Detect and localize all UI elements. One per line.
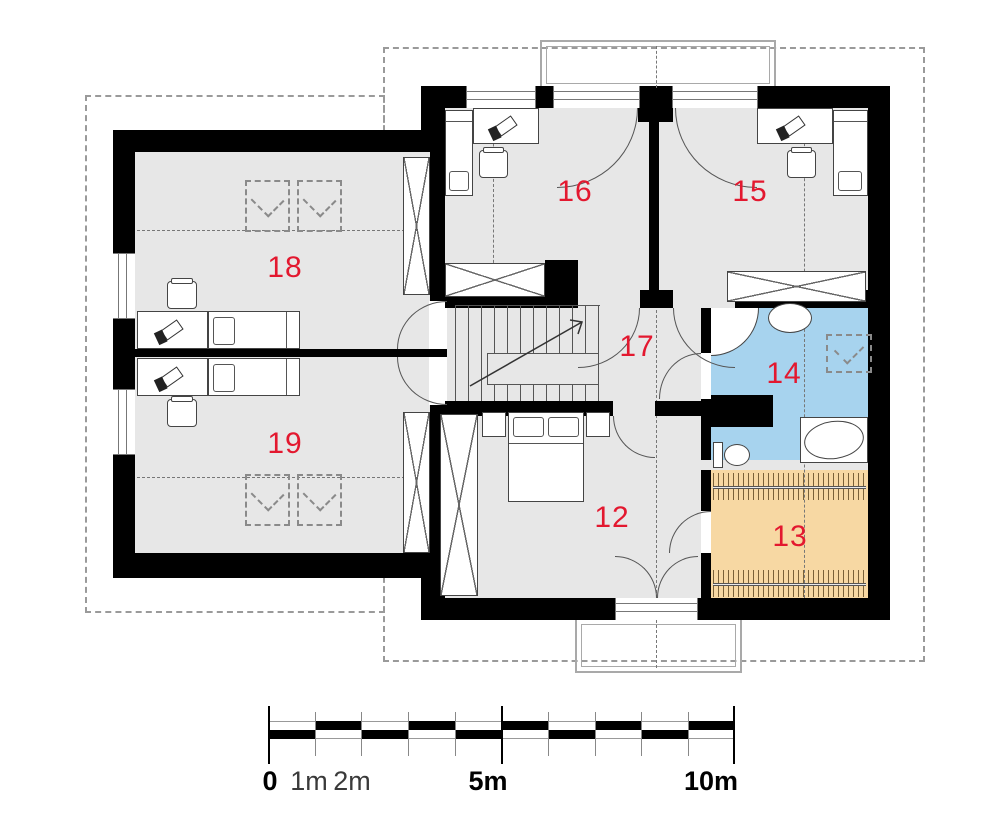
scale-segment <box>688 721 735 730</box>
scale-label-2m: 2m <box>333 766 371 797</box>
scale-segment <box>268 730 315 739</box>
scale-segment <box>548 730 595 739</box>
balcony-bottom-inner <box>581 624 736 667</box>
wardrobe-room19 <box>403 412 430 553</box>
room-label-17: 17 <box>619 330 654 364</box>
scale-label-0: 0 <box>262 766 277 797</box>
pillow <box>838 171 862 191</box>
skylight-room19-b <box>297 474 342 526</box>
scale-tick <box>548 712 549 756</box>
computer-icon <box>160 366 183 387</box>
skylight-bathroom <box>826 334 872 373</box>
wall-pier-between-top-doors <box>638 108 673 122</box>
desk-room18 <box>137 311 208 349</box>
scale-segment <box>408 721 455 730</box>
balcony-top <box>540 40 776 90</box>
hanging-rail-bottom <box>713 570 866 597</box>
wardrobe-room12 <box>440 414 478 596</box>
scale-segment <box>595 721 641 730</box>
chair-room19 <box>167 399 197 427</box>
scale-bar: 0 1m 2m 5m 10m <box>268 704 735 814</box>
scale-tick <box>688 712 689 756</box>
scale-tick <box>641 712 642 756</box>
bed-room12 <box>508 412 584 502</box>
mattress-line <box>834 121 867 122</box>
balcony-door-room15 <box>672 86 758 108</box>
wardrobe-room18 <box>403 157 430 295</box>
scale-label-5m: 5m <box>468 766 507 797</box>
balcony-door-room16 <box>553 86 640 108</box>
window-room18-west <box>113 253 135 319</box>
mattress-line <box>286 359 287 395</box>
scale-tick <box>595 712 596 756</box>
wall-divider-16-15 <box>649 108 659 308</box>
wardrobe-room16 <box>445 263 545 297</box>
room-label-18: 18 <box>267 251 302 285</box>
room-label-13: 13 <box>772 520 807 554</box>
skylight-room18-a <box>245 180 290 232</box>
bed-room16 <box>445 110 473 196</box>
nightstand-room12-right <box>586 412 610 437</box>
scale-segment <box>315 721 361 730</box>
chair-room16 <box>479 150 508 178</box>
balcony-bottom <box>575 618 742 673</box>
pillow <box>449 171 469 191</box>
scale-tick <box>315 712 316 756</box>
chair-room18 <box>167 281 197 309</box>
pillow <box>213 317 235 345</box>
mattress-line <box>446 121 472 122</box>
floor-plan: 18 16 15 17 14 19 12 13 0 1m 2m 5m 10m <box>0 0 1000 829</box>
scale-label-10m: 10m <box>684 766 738 797</box>
computer-icon <box>494 115 517 136</box>
wall-pier-stairwell <box>545 260 578 290</box>
pillow <box>548 417 579 437</box>
chair-room15 <box>787 150 816 178</box>
scale-tick-0 <box>268 706 270 764</box>
scale-tick-5m <box>501 706 503 764</box>
desk-room19 <box>137 358 208 396</box>
scale-tick-10m <box>733 706 735 764</box>
scale-segment <box>641 730 688 739</box>
scale-tick <box>408 712 409 756</box>
chimney-block <box>711 395 773 427</box>
scale-segment <box>361 730 408 739</box>
door-opening-room12 <box>613 401 655 416</box>
scale-tick <box>455 712 456 756</box>
sink <box>768 303 812 333</box>
mattress-line <box>286 312 287 348</box>
blanket-line <box>509 443 583 444</box>
pillow <box>513 417 544 437</box>
scale-segment <box>501 721 548 730</box>
skylight-room19-a <box>245 474 290 526</box>
wardrobe-room15 <box>727 271 866 302</box>
window-room16-north <box>466 86 536 108</box>
desk-room16 <box>473 108 539 144</box>
bathtub <box>800 417 868 463</box>
scale-tick <box>361 712 362 756</box>
computer-icon <box>782 115 805 136</box>
window-room19-west <box>113 389 135 455</box>
room-label-16: 16 <box>557 175 592 209</box>
skylight-room18-b <box>297 180 342 232</box>
scale-segment <box>455 730 501 739</box>
bed-room19 <box>208 358 300 396</box>
hanging-rail-top <box>713 473 866 500</box>
scale-label-1m: 1m <box>290 766 328 797</box>
axis-balcony-top <box>656 46 657 88</box>
bathtub-basin <box>802 417 867 463</box>
room-label-12: 12 <box>594 501 629 535</box>
desk-room15 <box>757 108 833 144</box>
room-label-14: 14 <box>766 357 801 391</box>
balcony-top-inner <box>546 46 770 84</box>
door-opening-room15 <box>673 290 735 308</box>
wall-divider-18-19 <box>135 349 447 357</box>
stair-direction-arrow <box>458 308 598 398</box>
bed-room15 <box>833 110 868 196</box>
computer-icon <box>160 319 183 340</box>
room-label-19: 19 <box>267 427 302 461</box>
toilet-tank <box>713 442 723 468</box>
balcony-door-room12 <box>615 598 698 620</box>
bed-room18 <box>208 311 300 349</box>
room-label-15: 15 <box>732 175 767 209</box>
rail-rod <box>713 583 866 586</box>
rail-rod <box>713 486 866 489</box>
toilet-bowl <box>724 444 750 466</box>
pillow <box>213 364 235 392</box>
nightstand-room12-left <box>482 412 506 437</box>
